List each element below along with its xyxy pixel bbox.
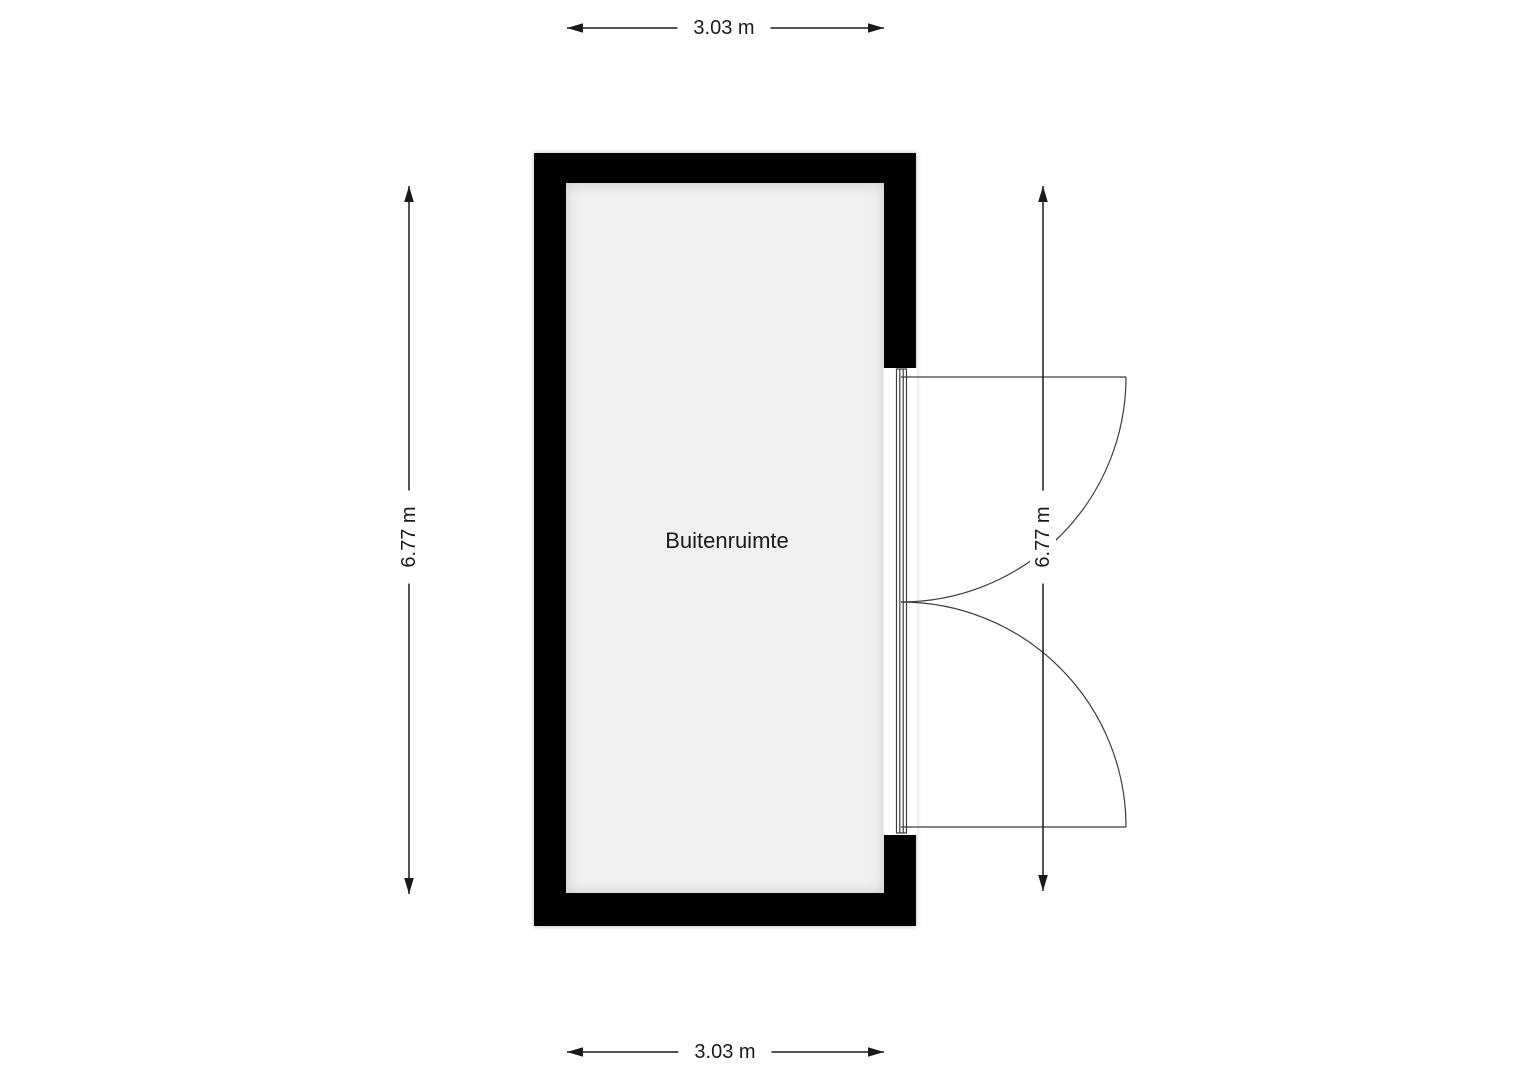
dimension-label-left: 6.77 m	[396, 490, 422, 583]
arrow-left-icon	[567, 1047, 583, 1057]
arrow-up-icon	[1038, 186, 1048, 202]
arrow-right-icon	[868, 23, 884, 33]
double-door	[883, 368, 1126, 835]
door-frame	[897, 369, 907, 833]
dimension-label-bottom: 3.03 m	[678, 1039, 771, 1065]
arrow-down-icon	[1038, 875, 1048, 891]
arrow-right-icon	[868, 1047, 884, 1057]
dimension-label-right: 6.77 m	[1030, 490, 1056, 583]
arrow-down-icon	[404, 878, 414, 894]
arrow-left-icon	[567, 23, 583, 33]
room-label: Buitenruimte	[665, 528, 789, 554]
dimension-label-top: 3.03 m	[677, 15, 770, 41]
door-swing-arc-top	[901, 377, 1126, 602]
floor-plan: 3.03 m 3.03 m 6.77 m 6.77 m Buitenruimte	[0, 0, 1528, 1080]
door-swing-arc-bottom	[901, 602, 1126, 827]
page: { "floorplan": { "room": { "name": "Buit…	[0, 0, 1528, 1080]
arrow-up-icon	[404, 186, 414, 202]
